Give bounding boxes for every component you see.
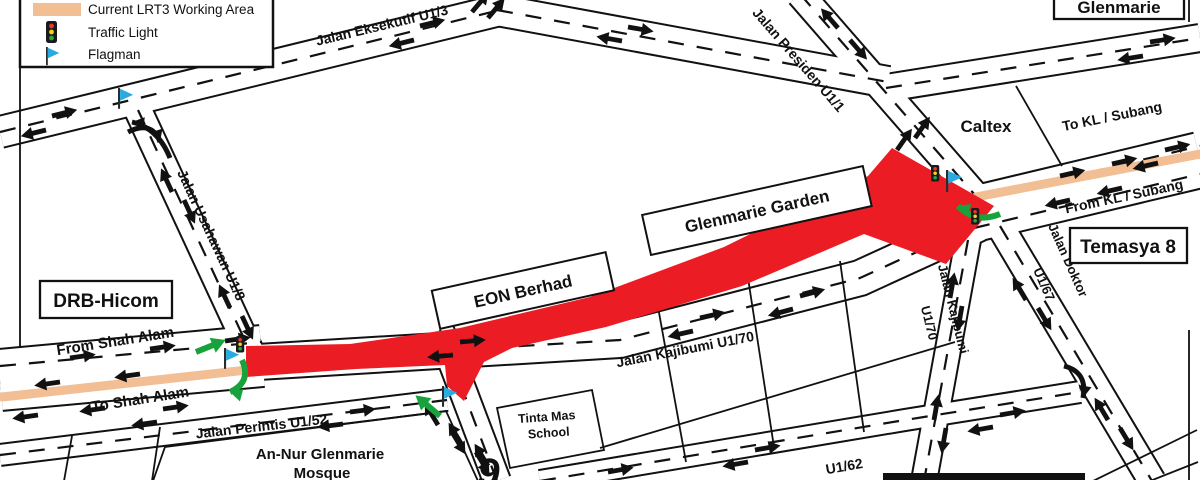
map-canvas: Jalan Eksekutif U1/3 Jalan Presiden U1/1… bbox=[0, 0, 1200, 480]
legend: Current LRT3 Working Area Traffic Light … bbox=[20, 0, 273, 67]
place-label-temasya8: Temasya 8 bbox=[1080, 237, 1176, 258]
legend-label-working-area: Current LRT3 Working Area bbox=[88, 2, 255, 17]
traffic-light-icon bbox=[971, 208, 979, 225]
direction-label-to-kl: To KL / Subang bbox=[1061, 98, 1164, 134]
flow-arrow-icon bbox=[11, 409, 39, 425]
place-label-drb-hicom: DRB-Hicom bbox=[53, 291, 159, 312]
legend-label-flagman: Flagman bbox=[88, 47, 141, 62]
bottom-black-bar bbox=[883, 473, 1085, 480]
place-label-caltex: Caltex bbox=[960, 117, 1012, 136]
traffic-light-icon bbox=[236, 336, 244, 353]
place-label-mosque-2: Mosque bbox=[294, 465, 351, 480]
place-label-tinta-mas-2: School bbox=[527, 425, 570, 442]
traffic-light-icon bbox=[46, 21, 57, 43]
legend-label-traffic-light: Traffic Light bbox=[88, 25, 158, 40]
place-label-glenmarie: Glenmarie bbox=[1077, 0, 1160, 17]
road-label-u162: U1/62 bbox=[824, 455, 864, 477]
flow-arrow-icon bbox=[966, 421, 994, 438]
place-label-mosque-1: An-Nur Glenmarie bbox=[256, 446, 384, 463]
place-label-tinta-mas-1: Tinta Mas bbox=[518, 408, 576, 426]
traffic-management-map: Jalan Eksekutif U1/3 Jalan Presiden U1/1… bbox=[0, 0, 1200, 480]
road-label-kajibumi-branch-2: U1/70 bbox=[918, 304, 941, 341]
working-area-swatch bbox=[33, 3, 81, 16]
traffic-light-icon bbox=[931, 165, 939, 182]
